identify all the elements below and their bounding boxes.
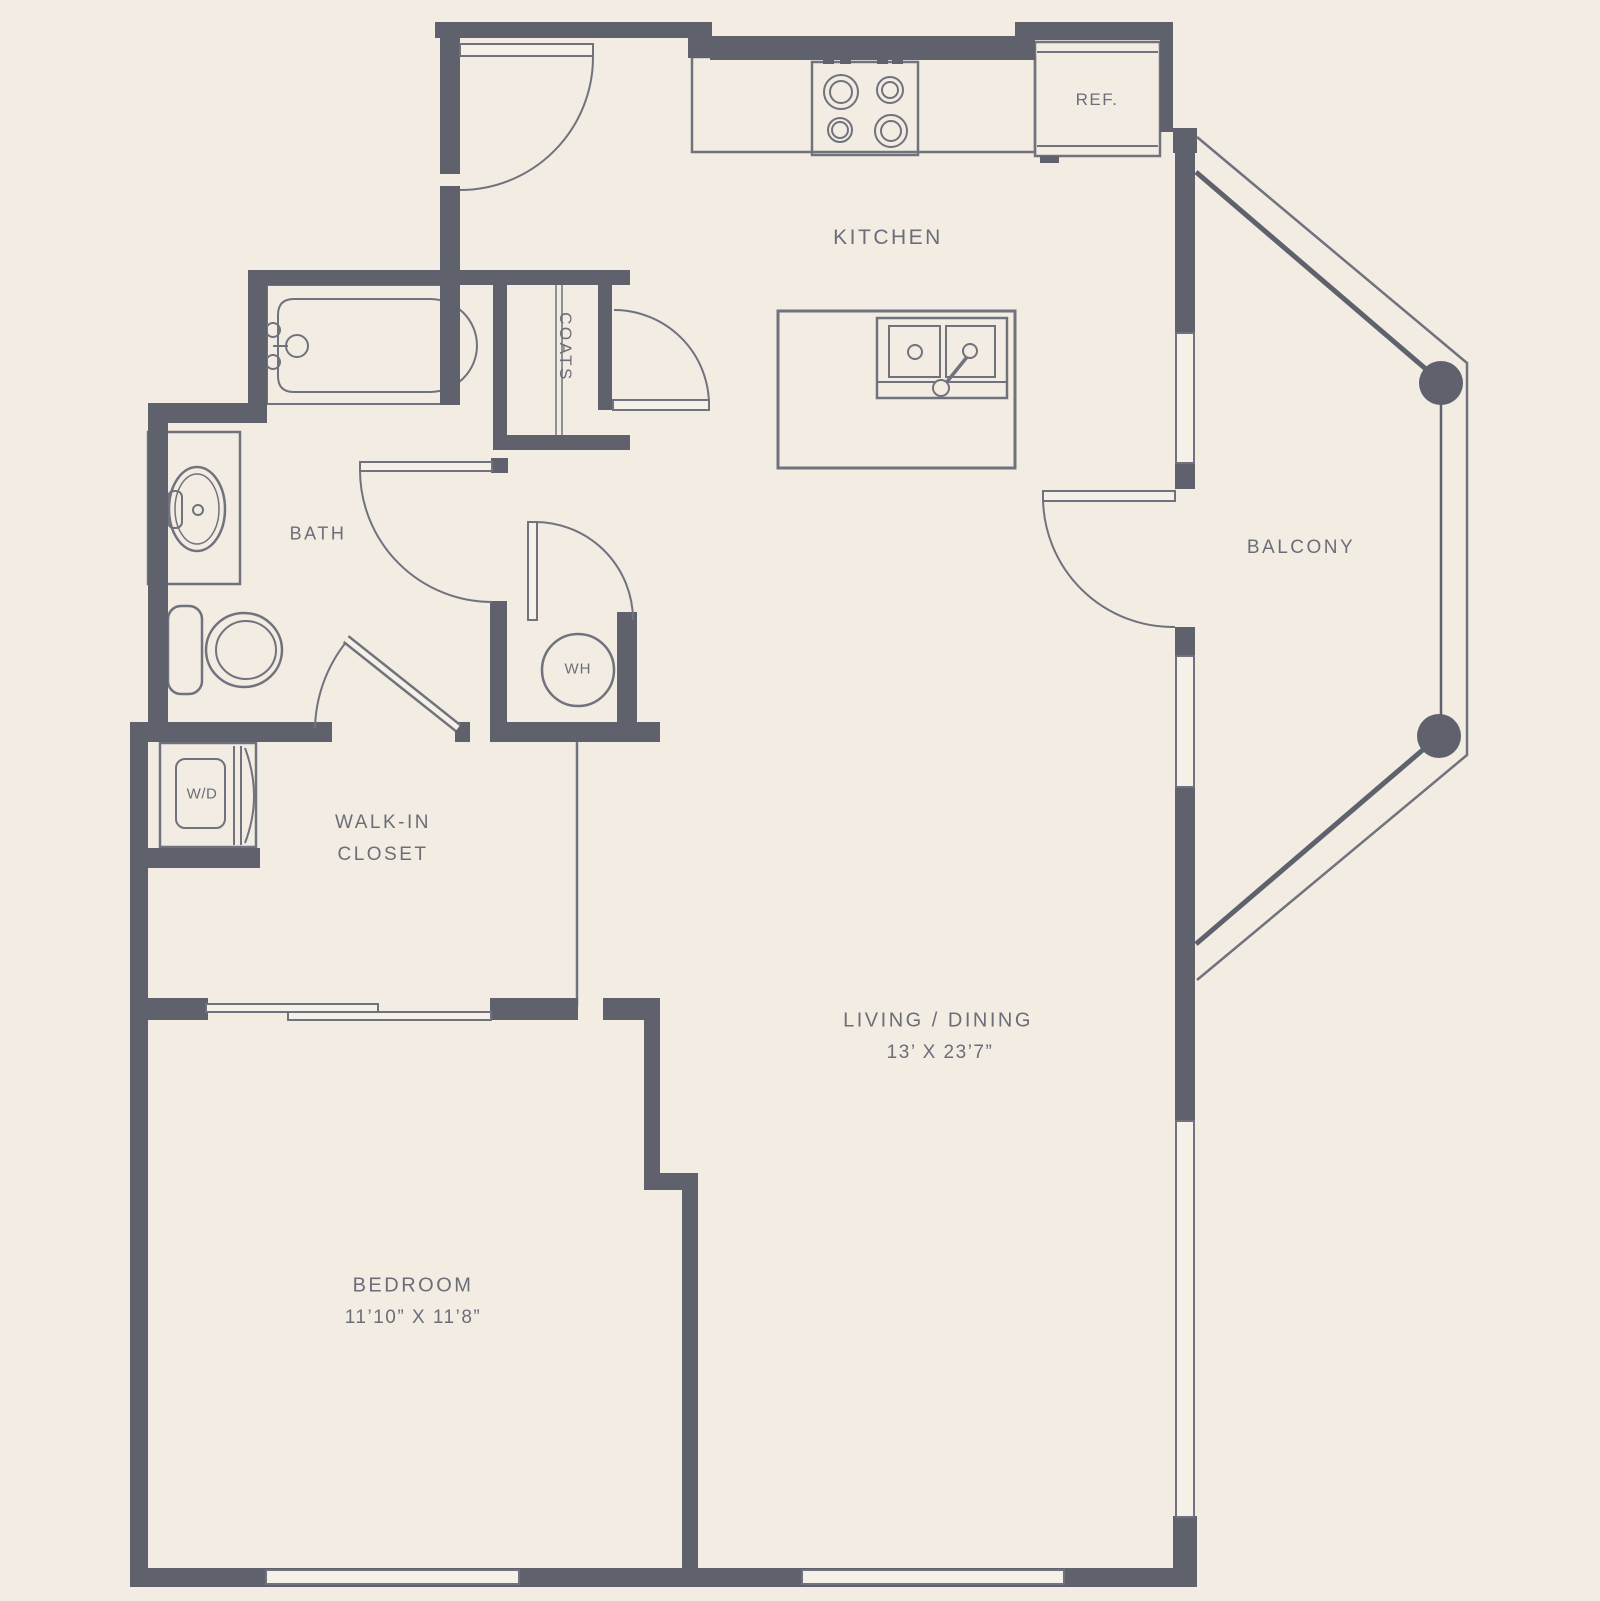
- wall-segment: [688, 22, 712, 58]
- wall-segment: [644, 1020, 660, 1180]
- water-heater-label: WH: [565, 661, 592, 678]
- wall-segment: [1175, 130, 1195, 333]
- bedroom-dimensions: 11’10” X 11’8”: [345, 1307, 481, 1329]
- wall-segment: [130, 998, 208, 1020]
- bedroom-label: BEDROOM: [353, 1275, 474, 1298]
- wall-segment: [490, 601, 507, 722]
- walls: [130, 22, 1197, 1587]
- island-sink-icon: [877, 318, 1007, 398]
- bath-door: [360, 462, 492, 602]
- washer-dryer-label: W/D: [187, 786, 218, 803]
- balcony-door: [1043, 491, 1175, 627]
- window: [802, 1570, 1064, 1584]
- wall-segment: [1175, 462, 1195, 489]
- water-heater-door: [528, 522, 633, 620]
- wall-segment: [1160, 22, 1173, 132]
- wall-segment: [440, 22, 460, 174]
- wall-segment: [493, 285, 507, 435]
- railing-post: [1417, 714, 1461, 758]
- wall-segment: [1015, 22, 1173, 40]
- stove-icon: [823, 54, 907, 147]
- wall-segment: [617, 612, 637, 722]
- wall-segment: [248, 270, 267, 403]
- bedroom-sliding-door: [206, 1004, 491, 1020]
- entry-door: [460, 44, 593, 190]
- wall-segment: [1175, 786, 1195, 1122]
- living-dining-dimensions: 13’ X 23’7”: [887, 1042, 994, 1064]
- kitchen-counter: [692, 57, 1035, 155]
- wall-segment: [148, 403, 168, 742]
- toilet-icon: [168, 606, 282, 694]
- window: [266, 1570, 519, 1584]
- wall-segment: [1175, 627, 1195, 657]
- wall-segment: [598, 285, 612, 410]
- bath-label: BATH: [290, 524, 347, 545]
- wall-segment: [710, 36, 1035, 60]
- refrigerator-label: REF.: [1076, 90, 1119, 110]
- walk-in-closet-label-line2: CLOSET: [337, 844, 428, 866]
- kitchen-island: [778, 311, 1015, 468]
- doors: [206, 44, 1175, 1020]
- living-dining-label: LIVING / DINING: [843, 1010, 1033, 1033]
- window: [1176, 656, 1194, 787]
- coats-door: [613, 310, 709, 410]
- wall-segment: [603, 998, 660, 1020]
- wall-segment: [682, 1190, 698, 1568]
- window: [1176, 333, 1194, 463]
- wall-segment: [490, 722, 660, 742]
- kitchen-label: KITCHEN: [833, 226, 943, 250]
- coats-closet-label: COATS: [555, 312, 575, 382]
- balcony-label: BALCONY: [1247, 537, 1355, 559]
- window: [1176, 1121, 1194, 1517]
- wall-segment: [644, 1173, 698, 1190]
- walk-in-closet-door: [315, 639, 458, 728]
- wall-segment: [440, 285, 460, 405]
- wall-segment: [248, 270, 630, 285]
- wall-segment: [491, 458, 508, 473]
- wall-segment: [493, 435, 630, 450]
- floor-plan-drawing: [0, 0, 1600, 1601]
- wall-segment: [490, 998, 578, 1020]
- railing-post: [1419, 361, 1463, 405]
- floor-plan: KITCHEN REF. COATS BATH WH W/D WALK-IN C…: [0, 0, 1600, 1601]
- wall-segment: [435, 22, 712, 38]
- wall-segment: [130, 722, 332, 742]
- wall-segment: [130, 848, 260, 868]
- walk-in-closet-label-line1: WALK-IN: [335, 812, 431, 834]
- windows: [266, 333, 1194, 1584]
